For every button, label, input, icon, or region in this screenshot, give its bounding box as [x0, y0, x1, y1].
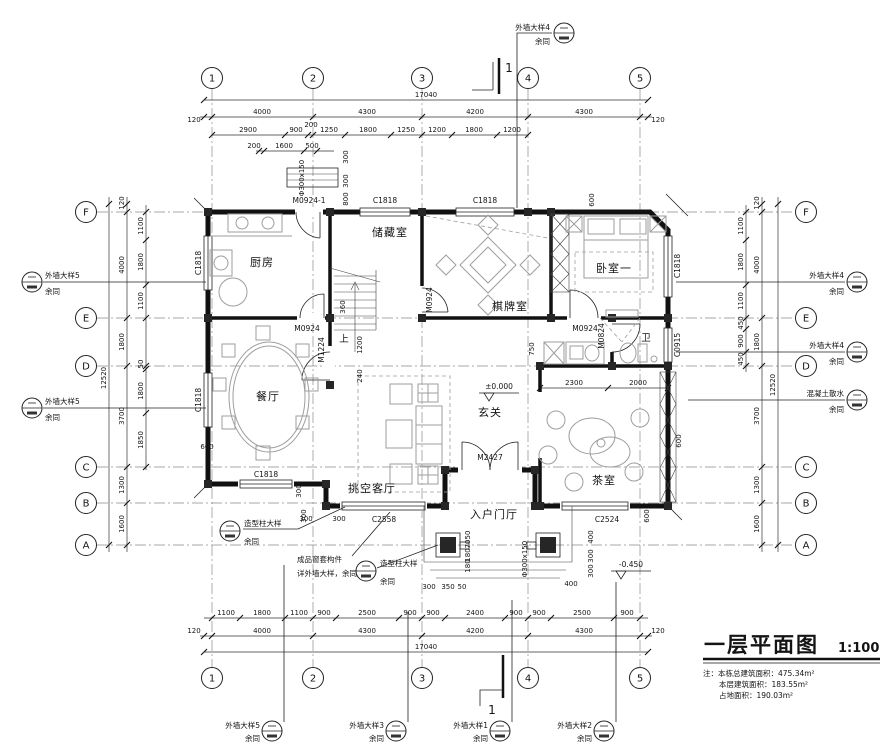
room-label-chess: 棋牌室 [492, 299, 528, 313]
callout-label: 余同 [369, 733, 384, 743]
dim-label: 3700 [753, 407, 761, 425]
dim-label: 1600 [275, 142, 293, 150]
dim-label: 900 [737, 334, 745, 347]
opening-label: M0924 [425, 287, 434, 313]
dim-label: 350 [441, 583, 454, 591]
dim-label: 1800 [465, 126, 483, 134]
dim-label: 600 [200, 443, 213, 451]
grid-bubble: 1 [209, 674, 215, 685]
callout-label: 外墙大样5 [225, 720, 260, 730]
drawing-scale: 1:100 [838, 641, 879, 656]
dim-label: 1800 [737, 253, 745, 271]
dim-label: 2500 [573, 609, 591, 617]
grid-bubble: 3 [419, 74, 425, 85]
dim-label: 300 [342, 150, 350, 163]
dim-label: 300 [300, 509, 308, 522]
dim-label: 300 [422, 583, 435, 591]
opening-label: C1818 [194, 388, 203, 413]
dim-label: 120 [187, 116, 200, 124]
opening-label: C1818 [254, 470, 279, 479]
dim-label: 2400 [466, 609, 484, 617]
dim-label: 600 [675, 434, 683, 447]
dim-label: 1800 [118, 333, 126, 351]
drawing-note: 占地面积：190.03m² [719, 690, 793, 700]
dim-label: 1800 [253, 609, 271, 617]
dim-label: 300 [587, 564, 595, 577]
dim-label: 450 [737, 316, 745, 329]
callout-label: 余同 [45, 286, 60, 296]
dim-label: 800 [342, 192, 350, 205]
dim-label: 1100 [737, 217, 745, 235]
dim-label: 4200 [466, 627, 484, 635]
opening-label: M0824 [597, 323, 606, 349]
opening-label: C1818 [673, 254, 682, 279]
grid-bubble: C [803, 463, 810, 474]
callout-label: 外墙大样5 [45, 270, 80, 280]
callout-label: 余同 [829, 404, 844, 414]
dim-label: Φ300x150 [298, 160, 306, 196]
dim-label: 900 [317, 609, 330, 617]
dim-label: 900 [509, 609, 522, 617]
dim-label: 1100 [137, 217, 145, 235]
dim-label: 120 [187, 627, 200, 635]
dim-label: 12520 [100, 367, 108, 389]
callout-label: 详外墙大样，余同 [297, 568, 357, 578]
callout-label: 外墙大样4 [809, 270, 844, 280]
dim-label: 50 [137, 360, 145, 369]
dim-label: 200 [304, 121, 317, 129]
callout-label: 造型柱大样 [380, 558, 418, 568]
dim-label: 120 [118, 196, 126, 209]
opening-label: C2524 [595, 515, 620, 524]
dim-label: 4300 [575, 627, 593, 635]
grid-bubble: 5 [637, 674, 643, 685]
grid-bubble: 1 [209, 74, 215, 85]
callout-label: 外墙大样5 [45, 396, 80, 406]
callout-label: 余同 [829, 356, 844, 366]
dim-label: 900 [620, 609, 633, 617]
dim-label: 1250 [320, 126, 338, 134]
dim-label: 300 [587, 549, 595, 562]
grid-bubble: 2 [310, 74, 316, 85]
room-label-kitchen: 厨房 [250, 256, 274, 269]
dim-label: 1200 [428, 126, 446, 134]
opening-label: C1818 [473, 196, 498, 205]
opening-label: C0915 [673, 333, 682, 358]
dim-label: 70 [464, 540, 472, 549]
dim-label: 1250 [397, 126, 415, 134]
dim-label: 1100 [137, 292, 145, 310]
section-label: 1 [505, 61, 513, 75]
opening-label: M2427 [477, 453, 503, 462]
callout-label: 余同 [244, 536, 259, 546]
dim-label: 4000 [253, 627, 271, 635]
callout-label: 外墙大样4 [809, 340, 844, 350]
dim-label: 1100 [737, 292, 745, 310]
dim-label: 4000 [253, 108, 271, 116]
grid-bubble: D [82, 362, 90, 373]
callout-label: 混凝土散水 [807, 388, 845, 398]
drawing-note: 注：本栋总建筑面积：475.34m² [703, 668, 815, 678]
dim-label: 600 [643, 509, 651, 522]
dim-label: 1800 [137, 382, 145, 400]
dim-label: 4000 [118, 256, 126, 274]
callout-label: 外墙大样2 [557, 720, 592, 730]
dim-label: 1850 [137, 431, 145, 449]
callout-label: 外墙大样3 [349, 720, 384, 730]
dim-label: 1200 [503, 126, 521, 134]
grid-bubble: D [802, 362, 810, 373]
dim-label: 4300 [575, 108, 593, 116]
dim-label: Φ300x150 [521, 541, 529, 577]
room-label-entry: 入户门厅 [470, 507, 518, 521]
grid-bubble: B [83, 499, 90, 510]
dim-label: 1600 [118, 515, 126, 533]
dim-label: 1600 [753, 515, 761, 533]
dim-label: 17040 [415, 643, 437, 651]
dim-label: 4300 [358, 627, 376, 635]
grid-bubble: F [83, 208, 89, 219]
callout-label: 余同 [577, 733, 592, 743]
callout-label: 余同 [45, 412, 60, 422]
dim-label: 17040 [415, 91, 437, 99]
dim-label: 750 [528, 342, 536, 355]
dim-label: 200 [247, 142, 260, 150]
callout-label: 余同 [473, 733, 488, 743]
room-label-living: 挑空客厅 [348, 481, 396, 495]
dim-label: 360 [339, 300, 347, 313]
dim-label: 4000 [753, 256, 761, 274]
dim-label: 2000 [629, 379, 647, 387]
opening-label: C2558 [372, 515, 397, 524]
room-label-bedroom: 卧室一 [596, 261, 632, 275]
opening-label: M0924-1 [292, 196, 325, 205]
dim-label: 1100 [290, 609, 308, 617]
dim-label: 2300 [565, 379, 583, 387]
grid-bubble: 5 [637, 74, 643, 85]
dim-label: 180 [464, 559, 472, 572]
grid-bubble: A [83, 541, 90, 552]
dim-label: 900 [532, 609, 545, 617]
room-label-foyer: 玄关 [478, 405, 502, 419]
grid-bubble: E [803, 314, 809, 325]
dim-label: 3700 [118, 407, 126, 425]
callout-label: 造型柱大样 [244, 518, 282, 528]
room-label-dining: 餐厅 [256, 389, 280, 403]
dim-label: 120 [651, 116, 664, 124]
dim-label: 12520 [769, 374, 777, 396]
opening-label: C1818 [194, 251, 203, 276]
dim-label: 4200 [466, 108, 484, 116]
dim-label: 2900 [239, 126, 257, 134]
dim-label: 1800 [359, 126, 377, 134]
dim-label: 50 [458, 583, 467, 591]
drawing-title: 一层平面图 [704, 633, 819, 657]
dim-label: 1100 [217, 609, 235, 617]
dim-label: 500 [305, 142, 318, 150]
level-outdoor-value: -0.450 [619, 560, 643, 569]
dim-label: 1300 [753, 476, 761, 494]
dim-label: 1800 [137, 253, 145, 271]
dim-label: 50 [464, 531, 472, 540]
dim-label: 1200 [356, 336, 364, 354]
grid-bubble: 2 [310, 674, 316, 685]
dim-label: 120 [651, 627, 664, 635]
dim-label: 2500 [358, 609, 376, 617]
grid-bubble: 4 [525, 674, 531, 685]
section-label: 1 [488, 703, 496, 717]
dim-label: 900 [426, 609, 439, 617]
opening-label: M0924 [572, 324, 598, 333]
opening-label: M1224 [317, 337, 326, 363]
grid-bubble: B [803, 499, 810, 510]
dim-label: 400 [587, 530, 595, 543]
callout-label: 余同 [829, 286, 844, 296]
callout-label: 外墙大样1 [453, 720, 488, 730]
grid-bubble: F [803, 208, 809, 219]
dim-label: 300 [342, 174, 350, 187]
drawing-note: 本层建筑面积：183.55m² [719, 679, 808, 689]
callout-label: 外墙大样4 [515, 22, 550, 32]
dim-label: 240 [356, 369, 364, 382]
dim-label: 1800 [753, 333, 761, 351]
opening-label: M0924 [294, 324, 320, 333]
dim-label: 1300 [118, 476, 126, 494]
callout-label: 余同 [380, 576, 395, 586]
dim-label: 450 [737, 352, 745, 365]
dim-label: 900 [403, 609, 416, 617]
dim-label: 300 [332, 515, 345, 523]
room-label-storage: 储藏室 [372, 225, 408, 239]
dim-label: 4300 [358, 108, 376, 116]
grid-bubble: A [803, 541, 810, 552]
floor-plan-drawing: 上 [0, 0, 894, 756]
dim-label: 300 [295, 484, 303, 497]
grid-bubble: 3 [419, 674, 425, 685]
grid-bubble: E [83, 314, 89, 325]
dim-label: 120 [753, 196, 761, 209]
dim-label: 900 [289, 126, 302, 134]
level-main-value: ±0.000 [485, 382, 513, 391]
room-label-tea: 茶室 [592, 473, 616, 487]
callout-label: 成品窗套构件 [297, 554, 342, 564]
dim-label: 400 [564, 580, 577, 588]
opening-label: C1818 [373, 196, 398, 205]
grid-bubble: 4 [525, 74, 531, 85]
callout-label: 余同 [245, 733, 260, 743]
room-label-bath: 卫 [641, 333, 651, 344]
callout-label: 余同 [535, 36, 550, 46]
grid-bubble: C [83, 463, 90, 474]
stair-up-label: 上 [339, 334, 349, 345]
floor-plan-sheet: 上 [0, 0, 894, 756]
dim-label: 600 [588, 193, 596, 206]
